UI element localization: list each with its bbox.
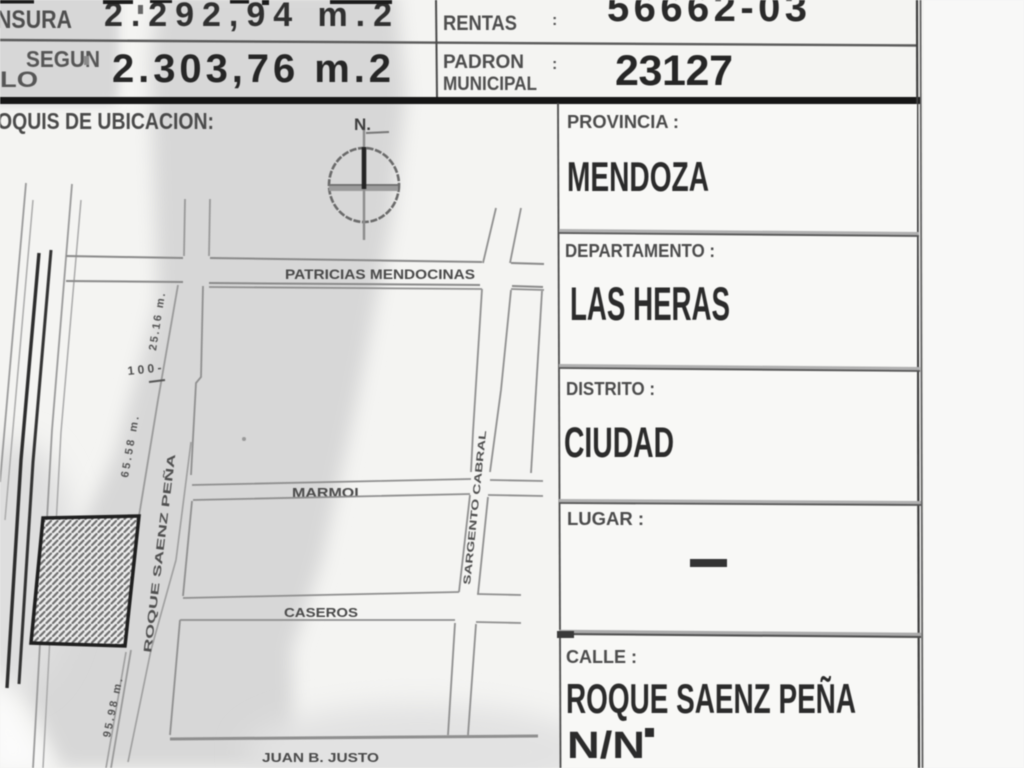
- svg-text:NSURA: NSURA: [0, 6, 72, 34]
- svg-text::: :: [552, 12, 557, 29]
- svg-text:ROQUE SAENZ PEÑA: ROQUE SAENZ PEÑA: [566, 675, 856, 722]
- svg-text:MUNICIPAL: MUNICIPAL: [443, 74, 537, 95]
- svg-text:MENDOZA: MENDOZA: [567, 153, 709, 200]
- svg-text:CASEROS: CASEROS: [284, 605, 358, 620]
- svg-text:N.: N.: [354, 115, 371, 134]
- svg-text:RENTAS: RENTAS: [443, 12, 517, 35]
- svg-text:CIUDAD: CIUDAD: [564, 419, 674, 467]
- svg-text:56662-03: 56662-03: [607, 0, 807, 30]
- svg-text:DEPARTAMENTO :: DEPARTAMENTO :: [565, 241, 715, 261]
- svg-text:N/N: N/N: [567, 725, 645, 767]
- svg-text:JUAN B. JUSTO: JUAN B. JUSTO: [262, 750, 379, 765]
- svg-text:PATRICIAS MENDOCINAS: PATRICIAS MENDOCINAS: [285, 266, 475, 282]
- svg-text::: :: [552, 56, 557, 73]
- svg-text:LUGAR :: LUGAR :: [567, 509, 644, 529]
- svg-text:2.303,76 m.2: 2.303,76 m.2: [112, 47, 391, 91]
- svg-text:23127: 23127: [615, 47, 733, 95]
- svg-text:LO: LO: [0, 67, 38, 92]
- svg-text:OQUIS DE UBICACION:: OQUIS DE UBICACION:: [0, 108, 214, 134]
- svg-text:LAS HERAS: LAS HERAS: [570, 277, 730, 330]
- svg-text:CALLE :: CALLE :: [566, 647, 637, 667]
- svg-text:DISTRITO :: DISTRITO :: [566, 379, 655, 399]
- svg-text:PROVINCIA :: PROVINCIA :: [567, 112, 679, 132]
- svg-text:PADRON: PADRON: [443, 52, 524, 73]
